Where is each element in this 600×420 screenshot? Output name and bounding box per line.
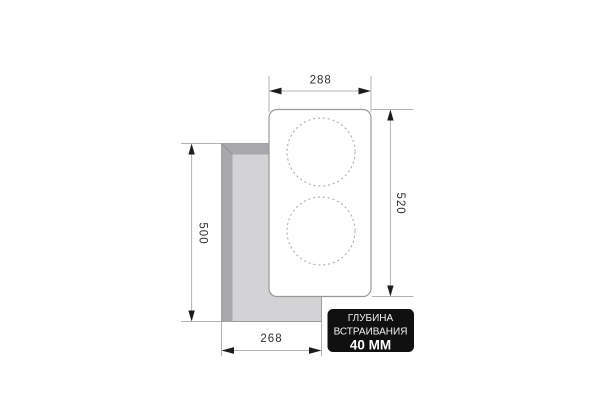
svg-text:500: 500: [196, 222, 208, 244]
svg-text:520: 520: [394, 193, 406, 215]
svg-text:ВСТРАИВАНИЯ: ВСТРАИВАНИЯ: [334, 327, 408, 338]
svg-text:288: 288: [310, 75, 332, 87]
svg-text:ГЛУБИНА: ГЛУБИНА: [348, 313, 394, 324]
svg-text:40 ММ: 40 ММ: [350, 337, 391, 352]
svg-text:268: 268: [260, 333, 282, 345]
